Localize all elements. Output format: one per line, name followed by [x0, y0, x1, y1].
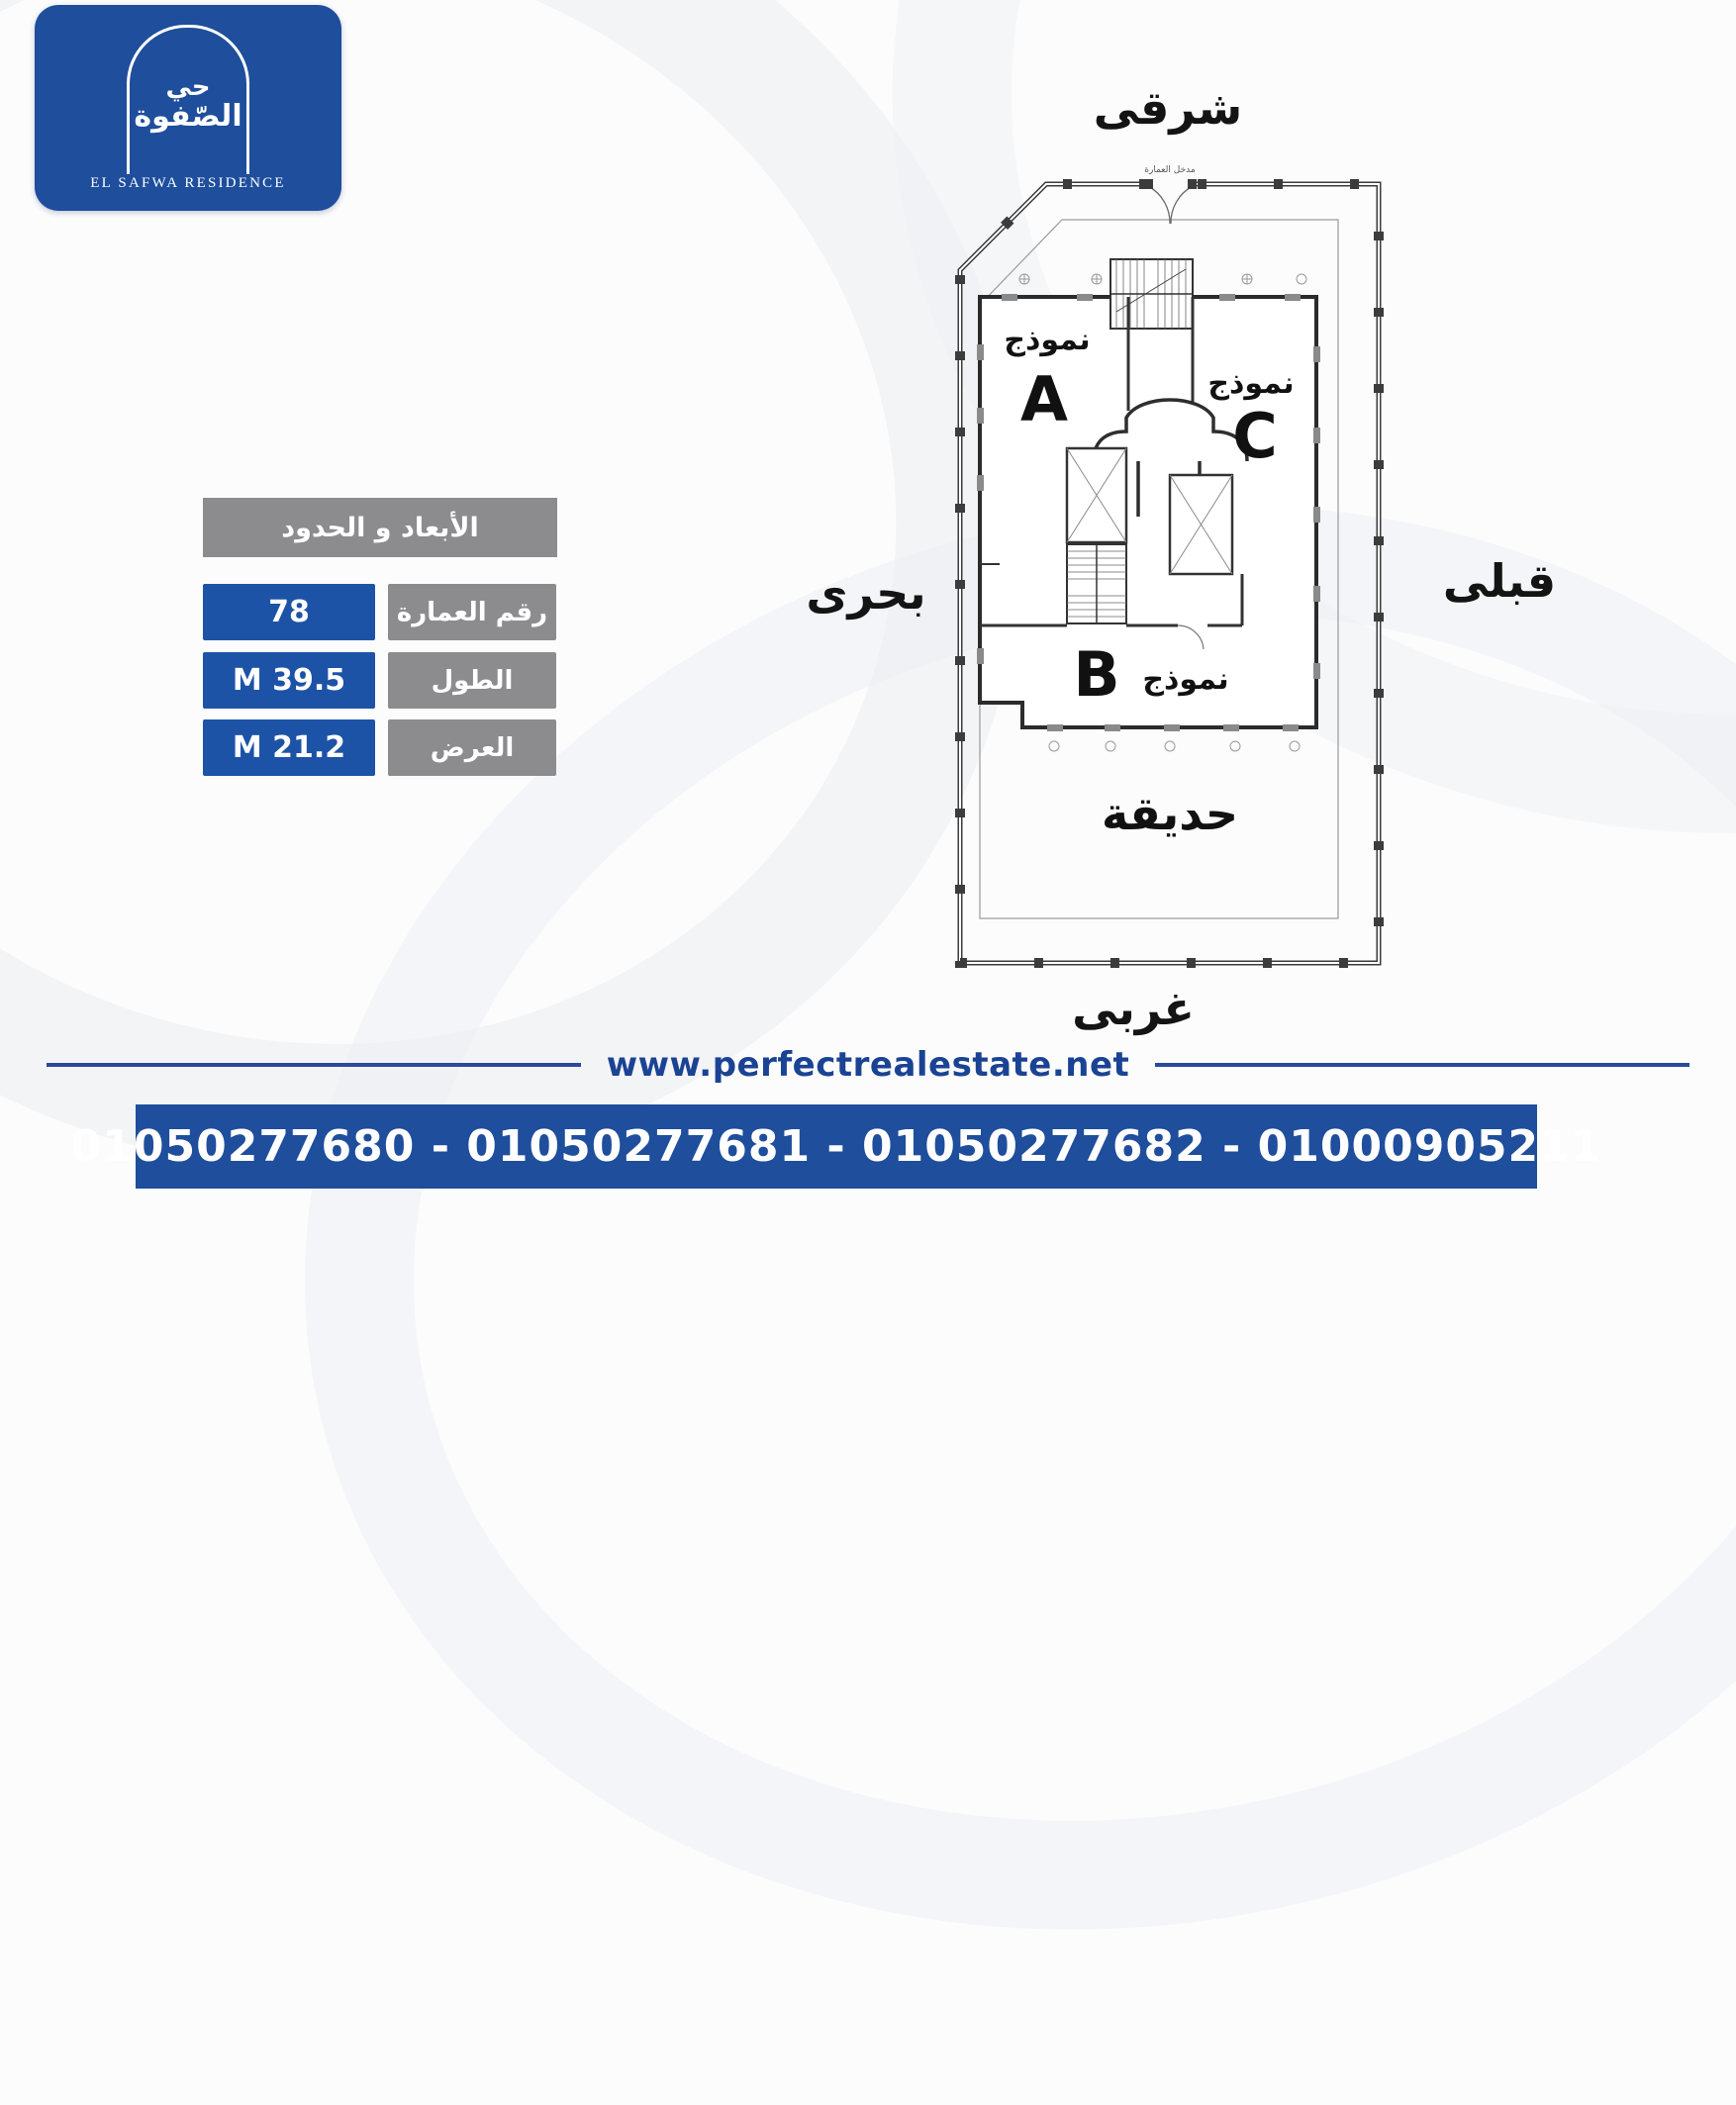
table-value-building-number: 78: [203, 584, 375, 640]
entrance-label: مدخل العمارة: [1144, 165, 1196, 175]
logo-arabic-line1: حي: [165, 74, 210, 100]
entrance-gate: [1144, 179, 1197, 224]
unit-b-letter: B: [1073, 638, 1119, 711]
elevator-shaft-a: [1067, 448, 1126, 542]
divider-line: [1155, 1063, 1689, 1067]
table-label-building-number: رقم العمارة: [388, 584, 556, 640]
phone-numbers-bar: 01050277680 - 01050277681 - 01050277682 …: [136, 1104, 1537, 1189]
direction-east: شرقى: [1064, 81, 1272, 135]
unit-a-word: نموذج: [1004, 323, 1090, 357]
direction-south: قبلى: [1396, 554, 1603, 608]
unit-b-word: نموذج: [1142, 662, 1228, 697]
divider-line: [47, 1063, 581, 1067]
unit-c-word: نموذج: [1207, 366, 1294, 401]
brand-badge: حي الصّفوة EL SAFWA RESIDENCE: [35, 5, 341, 211]
table-label-width: العرض: [388, 719, 556, 776]
table-value-width: M 21.2: [203, 719, 375, 776]
website-url: www.perfectrealestate.net: [607, 1045, 1130, 1085]
staircase-bottom: [1067, 544, 1126, 623]
phone-numbers: 01050277680 - 01050277681 - 01050277682 …: [71, 1121, 1602, 1172]
garden-label: حديقة: [1102, 787, 1238, 840]
table-header: الأبعاد و الحدود: [203, 498, 557, 557]
unit-a-letter: A: [1020, 363, 1068, 435]
brand-caption: EL SAFWA RESIDENCE: [35, 175, 341, 192]
floor-plan: مدخل العمارة: [851, 148, 1405, 980]
table-value-length: M 39.5: [203, 652, 375, 709]
staircase-top: [1110, 259, 1193, 329]
logo-arch-icon: حي الصّفوة: [127, 25, 249, 174]
direction-west: غربى: [1029, 982, 1237, 1035]
elevator-shaft-c: [1170, 475, 1232, 574]
website-row: www.perfectrealestate.net: [0, 1042, 1736, 1088]
unit-c-letter: C: [1232, 400, 1278, 472]
table-label-length: الطول: [388, 652, 556, 709]
logo-arabic-line2: الصّفوة: [134, 100, 241, 135]
